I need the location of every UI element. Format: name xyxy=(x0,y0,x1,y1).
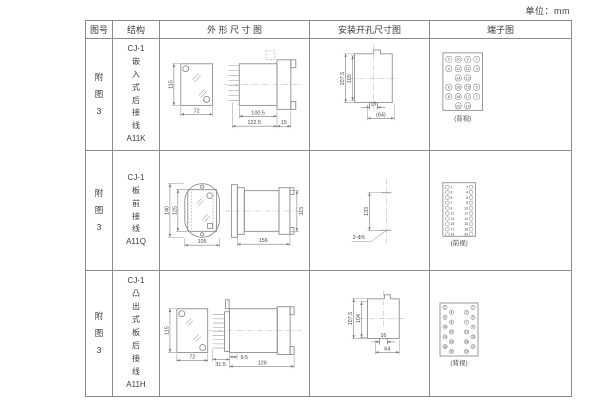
dimension-label: 2-Φ5 xyxy=(353,235,365,241)
outline-dims-cell: 115 72 100.5 122.5 15 xyxy=(160,39,310,151)
terminal-number: 13 xyxy=(450,217,454,221)
terminal-number: 11 xyxy=(450,212,454,216)
dimension-label: 31.5 xyxy=(215,362,226,368)
terminal-number: 4 xyxy=(448,66,451,71)
terminal-number: 1 xyxy=(475,57,477,62)
terminal-number: 17 xyxy=(465,94,469,99)
terminal-number: 7 xyxy=(466,320,468,324)
structure-text: CJ-1 嵌 入 式 后 接 线 A11K xyxy=(127,43,146,147)
terminal-circle xyxy=(469,212,473,216)
terminal-number: 2 xyxy=(448,57,450,62)
terminal-number: 14 xyxy=(443,335,447,339)
dimension-label: 105 xyxy=(347,74,353,83)
figure-no-cell: 附 图 3 xyxy=(86,151,113,271)
install-dims-cell: 133 2-Φ5 xyxy=(310,151,430,271)
install-holes-diagram: 133 2-Φ5 xyxy=(310,151,429,270)
header-terminal-diagram: 端子图 xyxy=(430,21,571,39)
manual-page: { "unit_label": "单位：mm", "header": { "co… xyxy=(0,0,600,400)
structure-cell: CJ-1 嵌 入 式 后 接 线 A11K xyxy=(113,39,160,151)
terminal-number: 12 xyxy=(464,212,468,216)
terminal-number: 5 xyxy=(472,315,474,319)
terminal-number: 9 xyxy=(472,325,474,329)
terminal-circle xyxy=(445,212,449,216)
terminal-circle xyxy=(469,217,473,221)
dimension-label: 100.5 xyxy=(251,110,265,116)
terminal-diagram-front: 1234567891011121314151617181920 (前视) xyxy=(430,151,571,270)
structure-text: CJ-1 板 前 接 线 A11Q xyxy=(126,172,146,250)
terminal-number: 10 xyxy=(464,206,468,210)
terminal-number: 20 xyxy=(464,233,468,237)
dimension-label: 115 xyxy=(164,326,170,335)
terminal-grid: 2143658710912111413161518172019 xyxy=(443,305,475,353)
dimension-label: 115 xyxy=(168,80,174,89)
terminal-circle xyxy=(469,206,473,210)
terminal-circle xyxy=(445,201,449,205)
install-cutout-diagram: 107.5 105 16 (64) xyxy=(310,39,429,150)
terminal-number: 9 xyxy=(467,57,470,62)
dimension-label: 140 xyxy=(164,206,170,215)
view-label: (前视) xyxy=(451,238,468,247)
header-figure-no: 图号 xyxy=(86,21,113,39)
dimension-label: 9.5 xyxy=(240,355,248,361)
dimension-label: 133 xyxy=(364,207,370,216)
terminal-number: 4 xyxy=(466,191,468,195)
structure-text: CJ-1 凸 出 式 板 后 接 线 A11H xyxy=(126,275,145,392)
dimension-label: 115 xyxy=(299,207,305,216)
outline-dimension-diagram: 115 72 100.5 122.5 15 xyxy=(160,39,309,150)
terminal-number: 8 xyxy=(451,320,453,324)
terminal-number: 19 xyxy=(465,350,469,354)
terminal-diagram-rear: 2143658710912111413161518172019 (背视) xyxy=(430,271,571,396)
terminal-diagram-cell: 2143658710912111413161518172019 (背视) xyxy=(430,271,571,396)
terminal-number: 17 xyxy=(471,345,475,349)
terminal-number: 3 xyxy=(475,66,478,71)
terminal-circle xyxy=(445,185,449,189)
terminal-number: 8 xyxy=(448,94,451,99)
dimension-label: 72 xyxy=(194,108,200,114)
terminal-number: 6 xyxy=(448,85,451,90)
terminal-number: 1 xyxy=(450,185,452,189)
terminal-diagram-rear: 2109141211314136161558181772019 (背视) xyxy=(430,39,571,150)
dimension-label: 126 xyxy=(258,360,267,366)
terminal-diagram-cell: 2109141211314136161558181772019 (背视) xyxy=(430,39,571,151)
outline-dimension-diagram: 115 72 9.5 31.5 126 xyxy=(160,271,309,396)
terminal-number: 12 xyxy=(450,330,454,334)
terminal-number: 1 xyxy=(472,306,474,310)
terminal-number: 5 xyxy=(450,196,452,200)
terminal-number: 3 xyxy=(450,191,452,195)
terminal-number: 11 xyxy=(465,330,469,334)
terminal-circle xyxy=(469,196,473,200)
side-view-drawing: 9.5 31.5 126 xyxy=(208,300,301,369)
side-view-drawing: 100.5 122.5 15 xyxy=(223,51,300,128)
structure-cell: CJ-1 板 前 接 线 A11Q xyxy=(113,151,160,271)
dimension-label: 107.5 xyxy=(348,312,354,326)
terminal-circle xyxy=(469,185,473,189)
structure-cell: CJ-1 凸 出 式 板 后 接 线 A11H xyxy=(113,271,160,396)
terminal-circle xyxy=(469,191,473,195)
terminal-circle xyxy=(445,196,449,200)
terminal-number: 7 xyxy=(475,94,477,99)
terminal-number: 14 xyxy=(464,217,468,221)
unit-label: 单位：mm xyxy=(526,4,571,17)
terminal-number: 15 xyxy=(450,222,454,226)
install-cutout-diagram: 107.5 104 16 64 xyxy=(310,271,429,396)
dimension-table: 图号 结构 外 形 尺 寸 图 安装开孔尺寸图 端子图 附 图 3 CJ-1 嵌… xyxy=(85,20,572,397)
figure-no-text: 附 图 3 xyxy=(95,185,104,236)
dimension-label: (64) xyxy=(376,112,386,118)
terminal-number: 4 xyxy=(451,311,453,315)
terminal-number: 11 xyxy=(466,66,470,71)
dimension-label: 122.5 xyxy=(247,120,261,126)
terminal-number: 5 xyxy=(475,85,478,90)
side-view-drawing: 156 115 xyxy=(225,185,304,246)
view-label: (背视) xyxy=(454,113,471,122)
terminal-number: 3 xyxy=(466,311,468,315)
figure-no-text: 附 图 3 xyxy=(95,308,104,359)
terminal-number: 9 xyxy=(450,206,452,210)
terminal-number: 16 xyxy=(464,222,468,226)
terminal-number: 17 xyxy=(450,227,454,231)
view-label: (背视) xyxy=(450,358,467,367)
terminal-number: 7 xyxy=(450,201,452,205)
terminal-number: 13 xyxy=(471,335,475,339)
dimension-label: 104 xyxy=(356,314,362,323)
install-dims-cell: 107.5 105 16 (64) xyxy=(310,39,430,151)
dimension-label: 15 xyxy=(281,120,287,126)
terminal-number: 2 xyxy=(466,185,468,189)
terminal-number: 6 xyxy=(444,315,446,319)
terminal-number: 19 xyxy=(450,233,454,237)
terminal-circle xyxy=(445,233,449,237)
terminal-circle xyxy=(469,227,473,231)
terminal-circle xyxy=(445,222,449,226)
dimension-label: 64 xyxy=(384,346,390,352)
terminal-circle xyxy=(445,227,449,231)
terminal-number: 12 xyxy=(456,66,460,71)
terminal-number: 20 xyxy=(450,350,454,354)
dimension-label: 72 xyxy=(189,354,195,360)
dimension-label: 16 xyxy=(370,101,376,107)
terminal-circle xyxy=(469,201,473,205)
front-view-drawing: 140 125 105 xyxy=(164,184,219,247)
terminal-grid: 1234567891011121314151617181920 xyxy=(445,185,473,236)
header-outline-dims: 外 形 尺 寸 图 xyxy=(160,21,310,39)
terminal-number: 18 xyxy=(443,345,447,349)
dimension-label: 107.5 xyxy=(340,72,346,86)
figure-no-cell: 附 图 3 xyxy=(86,39,113,151)
dimension-label: 105 xyxy=(198,239,207,245)
terminal-circle xyxy=(445,191,449,195)
outline-dims-cell: 115 72 9.5 31.5 126 xyxy=(160,271,310,396)
outline-dimension-diagram: 140 125 105 156 115 xyxy=(160,151,309,270)
terminal-circle xyxy=(445,206,449,210)
terminal-circle xyxy=(445,217,449,221)
terminal-number: 15 xyxy=(465,340,469,344)
dimension-label: 16 xyxy=(380,333,386,339)
terminal-circle xyxy=(469,233,473,237)
outline-dims-cell: 140 125 105 156 115 xyxy=(160,151,310,271)
terminal-diagram-cell: 1234567891011121314151617181920 (前视) xyxy=(430,151,571,271)
header-structure: 结构 xyxy=(113,21,160,39)
figure-no-cell: 附 图 3 xyxy=(86,271,113,396)
terminal-number: 18 xyxy=(464,227,468,231)
terminal-circle xyxy=(469,222,473,226)
terminal-number: 10 xyxy=(443,325,447,329)
dimension-label: 125 xyxy=(172,206,178,215)
terminal-number: 6 xyxy=(466,196,468,200)
terminal-number: 16 xyxy=(450,340,454,344)
terminal-number: 8 xyxy=(466,201,468,205)
header-install-dims: 安装开孔尺寸图 xyxy=(310,21,430,39)
front-view-drawing: 115 72 xyxy=(168,64,212,117)
front-view-drawing: 115 72 xyxy=(164,309,207,363)
figure-no-text: 附 图 3 xyxy=(95,69,104,120)
terminal-grid: 2109141211314136161558181772019 xyxy=(446,56,480,109)
dimension-label: 156 xyxy=(259,238,268,244)
install-dims-cell: 107.5 104 16 64 xyxy=(310,271,430,396)
terminal-number: 2 xyxy=(444,306,446,310)
